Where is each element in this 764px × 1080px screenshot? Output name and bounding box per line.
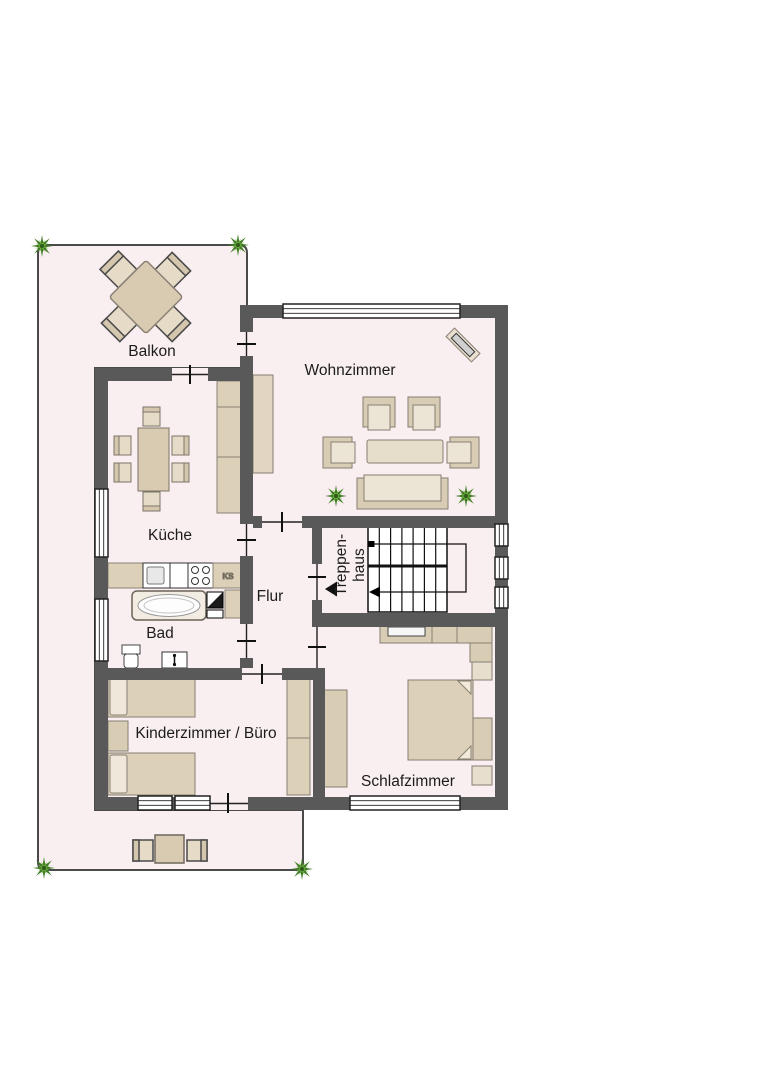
plant-icon: [291, 858, 313, 880]
coffee-table: [367, 440, 443, 463]
bathtub: [132, 591, 206, 620]
kitchen-chair: [172, 436, 189, 455]
armchair: [363, 397, 395, 430]
nightstand: [472, 662, 492, 680]
label-kinderzimmer: Kinderzimmer / Büro: [135, 725, 276, 742]
counter: [108, 563, 143, 588]
counter: [170, 563, 188, 588]
label-treppenhaus-line1: Treppen-: [333, 534, 350, 596]
wardrobe: [287, 677, 310, 795]
label-wohnzimmer: Wohnzimmer: [304, 362, 395, 379]
cabinet: [253, 375, 273, 473]
fridge-label: KS: [222, 572, 234, 581]
window: [138, 796, 172, 810]
side-chair: [447, 437, 479, 468]
washbasin: [162, 652, 187, 668]
terrace-chair: [133, 840, 153, 861]
kitchen-chair: [143, 492, 160, 511]
label-bad: Bad: [146, 625, 174, 642]
bed: [108, 675, 195, 717]
label-balkon: Balkon: [128, 343, 175, 360]
window: [95, 489, 108, 557]
side-chair: [323, 437, 355, 468]
bed: [108, 753, 195, 795]
nightstand: [108, 721, 128, 751]
window: [283, 304, 460, 318]
kitchen-chair: [172, 463, 189, 482]
plant-icon: [227, 234, 249, 256]
plant-icon: [325, 485, 347, 507]
label-schlafzimmer: Schlafzimmer: [361, 773, 455, 790]
window: [95, 599, 108, 661]
kitchen-chair: [114, 436, 131, 455]
toilet: [122, 645, 140, 668]
terrace-table: [155, 835, 184, 863]
plant-icon: [31, 235, 53, 257]
wall: [312, 613, 508, 627]
stove: [188, 563, 213, 588]
plant-icon: [455, 485, 477, 507]
kitchen-chair: [143, 407, 160, 426]
double-bed: [408, 680, 473, 760]
window: [495, 557, 508, 579]
wall: [95, 368, 108, 810]
wall: [95, 368, 247, 381]
armchair: [408, 397, 440, 430]
window: [350, 796, 460, 810]
floorplan-drawing: KS: [0, 0, 764, 1080]
label-treppenhaus-line2: haus: [351, 548, 368, 582]
fridge: KS: [213, 563, 243, 588]
dresser: [473, 718, 492, 760]
sofa: [357, 475, 448, 509]
label-flur: Flur: [257, 588, 284, 605]
window: [175, 796, 210, 810]
floorplan-page: KS: [0, 0, 764, 1080]
shower-fixture: [207, 592, 223, 618]
label-kueche: Küche: [148, 527, 192, 544]
wall: [240, 305, 253, 680]
wall: [313, 668, 325, 810]
window: [495, 587, 508, 608]
plant-icon: [33, 857, 55, 879]
terrace-chair: [187, 840, 207, 861]
kitchen-sink: [143, 563, 170, 588]
nightstand: [472, 766, 492, 785]
kitchen-chair: [114, 463, 131, 482]
tall-cabinet: [217, 381, 243, 513]
window: [495, 524, 508, 546]
dining-table: [138, 428, 169, 491]
